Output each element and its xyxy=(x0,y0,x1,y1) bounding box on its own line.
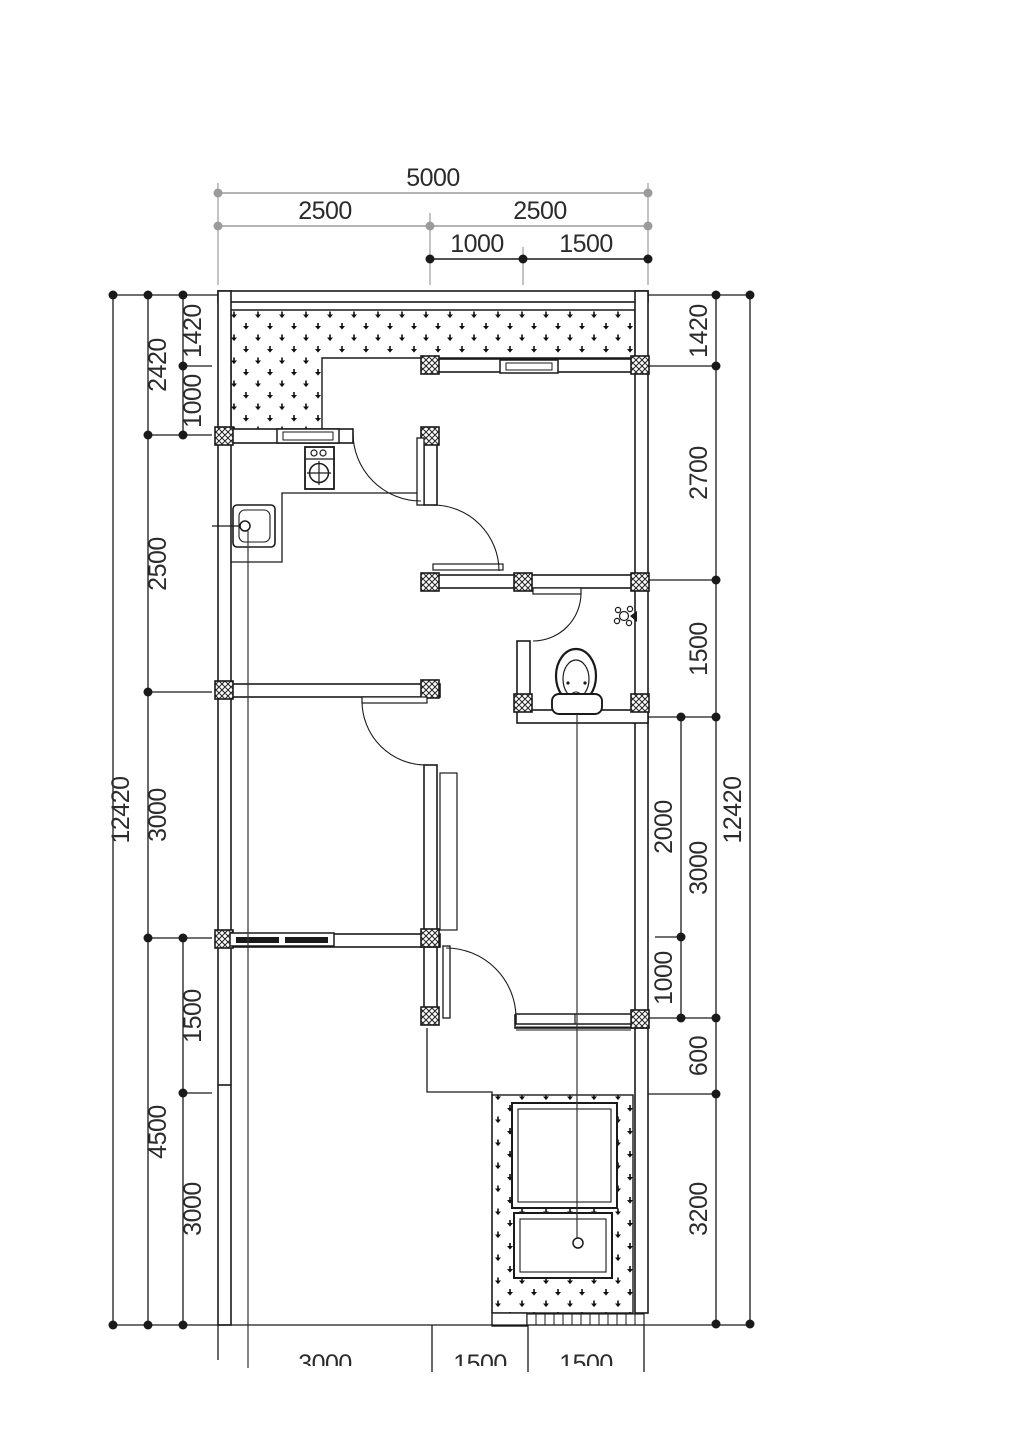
dim-label: 1500 xyxy=(559,230,613,258)
entry-step xyxy=(492,1313,527,1326)
dim-label: 1500 xyxy=(179,989,207,1043)
dim-label-left-total: 12420 xyxy=(107,776,135,843)
column xyxy=(631,573,649,591)
stove-icon xyxy=(305,447,334,489)
column xyxy=(421,573,439,591)
dim-label: 1000 xyxy=(650,951,678,1005)
wall-right-exterior xyxy=(635,291,648,1313)
floor-drain-icon xyxy=(573,1238,583,1248)
column xyxy=(631,694,649,712)
dim-label: 3000 xyxy=(179,1182,207,1236)
dim-label: 2500 xyxy=(513,197,567,225)
dim-label: 600 xyxy=(685,1036,713,1076)
dim-label: 1500 xyxy=(685,622,713,676)
step-strip xyxy=(527,1314,644,1325)
wall-top-exterior xyxy=(218,291,648,302)
dim-label: 3000 xyxy=(685,841,713,895)
dim-label: 1000 xyxy=(179,374,207,428)
floor-plan-page: 5000 2500 2500 1000 1500 12420 2420 xyxy=(0,0,1024,1449)
dim-label: 2500 xyxy=(298,197,352,225)
column xyxy=(215,681,233,699)
bedroom2-window xyxy=(230,933,334,946)
cabinet-rect xyxy=(440,773,457,930)
wall-kitchen-side xyxy=(424,443,437,505)
column xyxy=(631,356,649,374)
column xyxy=(215,427,233,445)
dim-label: 3000 xyxy=(144,788,172,842)
wall-bedroom2-top xyxy=(218,684,440,697)
dim-label-top-total: 5000 xyxy=(406,164,460,192)
dim-label: 1420 xyxy=(685,304,713,358)
dim-label: 2000 xyxy=(650,800,678,854)
kitchen-window xyxy=(277,429,339,443)
floor-plan-drawing: 5000 2500 2500 1000 1500 12420 2420 xyxy=(0,0,1024,1449)
dim-label: 2700 xyxy=(685,446,713,500)
wall-hall-side xyxy=(424,947,437,1015)
dim-label-right-total: 12420 xyxy=(719,776,747,843)
dim-label: 4500 xyxy=(144,1105,172,1159)
column xyxy=(514,573,532,591)
dim-label: 1420 xyxy=(179,304,207,358)
dim-label: 3200 xyxy=(685,1182,713,1236)
bedroom3-window xyxy=(500,360,558,373)
wall-left-exterior xyxy=(218,291,231,1325)
column xyxy=(421,680,439,698)
column xyxy=(631,1010,649,1028)
column xyxy=(514,694,532,712)
dim-label: 1000 xyxy=(450,230,504,258)
dim-label: 2420 xyxy=(144,338,172,392)
column xyxy=(421,929,439,947)
column xyxy=(421,356,439,374)
dim-label: 2500 xyxy=(144,537,172,591)
wall-bedroom3-bathroom xyxy=(423,575,648,588)
wall-bedroom2-side xyxy=(424,765,437,932)
column xyxy=(421,1007,439,1025)
